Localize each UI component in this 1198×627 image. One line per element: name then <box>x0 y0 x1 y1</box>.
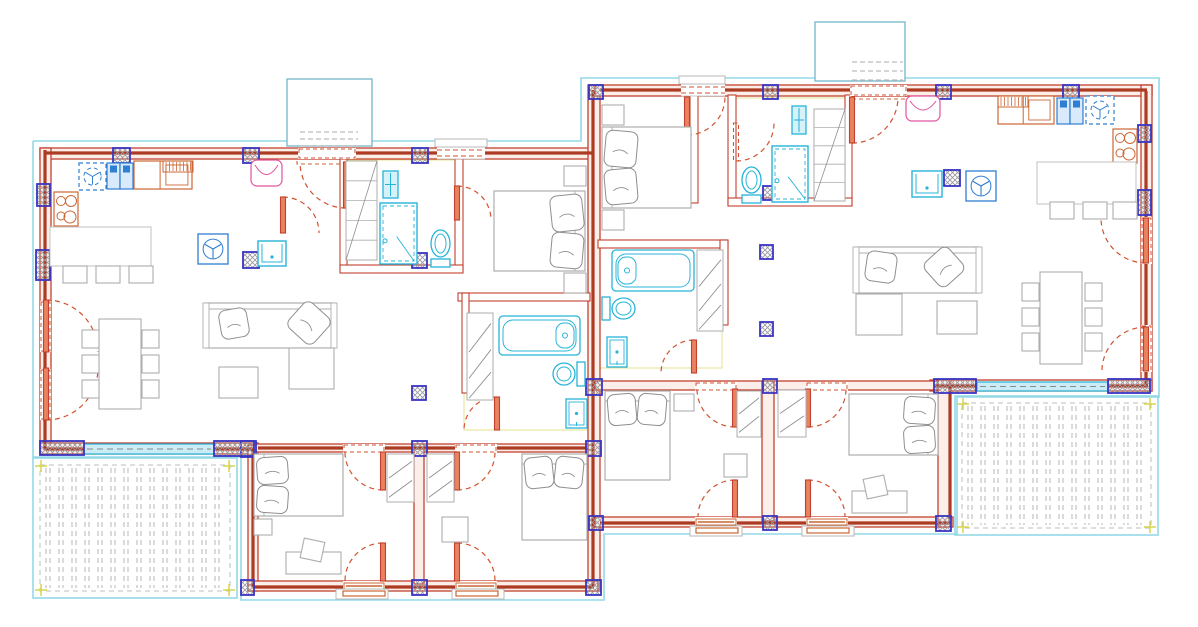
door-swing-arc <box>457 543 495 581</box>
bathtub <box>499 316 580 355</box>
laundry-sink <box>912 171 942 197</box>
pillow <box>256 456 289 485</box>
door-leaf <box>455 543 460 581</box>
door-leaf <box>733 480 738 517</box>
toilet <box>431 230 450 267</box>
pillar <box>113 148 130 163</box>
washing-machine <box>79 163 106 190</box>
sofa-chaise <box>856 294 902 335</box>
window-sill <box>435 139 487 147</box>
chair <box>142 380 159 398</box>
pillow <box>523 456 554 490</box>
entrance-canopy <box>287 79 372 146</box>
chair <box>1022 283 1039 301</box>
stove <box>54 192 78 226</box>
door-swing-arc <box>808 480 845 517</box>
interior-wall <box>728 95 736 205</box>
bathroom-sink <box>566 399 587 428</box>
wardrobe <box>387 454 414 502</box>
pillar <box>936 516 951 531</box>
pillow <box>550 232 585 270</box>
pillow <box>553 456 584 490</box>
washer-dryer <box>198 234 228 264</box>
door-leaf <box>850 97 855 143</box>
chair <box>82 355 99 373</box>
door-swing-arc <box>283 197 319 233</box>
pillow <box>549 193 585 232</box>
pillar <box>1138 190 1151 215</box>
door-leaf <box>806 480 811 517</box>
entrance-canopy <box>815 22 905 81</box>
pillar-wide <box>934 379 976 393</box>
door-swing-arc <box>697 389 735 427</box>
kitchen-sink <box>1057 98 1083 124</box>
interior-wall <box>598 240 728 248</box>
shower-cabin <box>772 146 808 202</box>
pillow <box>637 393 668 426</box>
door-leaf <box>44 300 49 352</box>
nightstand <box>564 166 586 186</box>
wash-basin <box>251 160 282 186</box>
pillar <box>760 322 773 336</box>
chair <box>1085 333 1102 351</box>
floor-plan-page: Two-unit house floor plan — CAD drawing <box>0 0 1198 627</box>
door-leaf <box>381 452 386 490</box>
dining-table <box>99 319 141 409</box>
wardrobe <box>778 390 806 437</box>
pillar <box>589 85 603 99</box>
nightstand <box>674 394 694 411</box>
closet-shelves <box>814 109 845 201</box>
pillow <box>903 425 936 454</box>
door-leaf <box>44 368 49 420</box>
pillar <box>586 441 601 456</box>
dining-table <box>1040 272 1082 364</box>
desk-chair <box>300 538 325 562</box>
interior-window <box>792 106 806 134</box>
door-leaf <box>381 543 386 581</box>
pillar-wide <box>40 441 84 455</box>
wash-basin <box>906 96 940 121</box>
door-swing-arc <box>1101 218 1146 263</box>
chair <box>1022 333 1039 351</box>
door-swing-arc <box>345 543 383 581</box>
desk-chair <box>863 475 888 499</box>
pillar-wide <box>1108 379 1150 393</box>
stove <box>1113 129 1137 163</box>
pillow <box>603 130 638 169</box>
bar-stool <box>96 266 120 283</box>
pillow <box>864 250 898 284</box>
wardrobe <box>427 454 454 502</box>
pillar <box>760 245 773 259</box>
wardrobe <box>697 250 723 331</box>
pillar <box>243 252 259 268</box>
kitchen-island <box>1037 162 1136 204</box>
pillar <box>589 516 603 530</box>
coffee-table <box>219 367 258 398</box>
door-swing-arc <box>1102 327 1146 371</box>
terrace-left <box>33 458 237 598</box>
pillar <box>586 580 601 595</box>
wall <box>414 444 424 584</box>
chair <box>1022 308 1039 326</box>
floor-plan-canvas: Two-unit house floor plan — CAD drawing <box>0 0 1198 627</box>
pillar <box>36 250 50 280</box>
sofa-chaise <box>289 348 334 389</box>
wardrobe <box>737 391 761 437</box>
bar-stool <box>63 266 87 283</box>
pillar <box>1138 125 1151 142</box>
terrace-right <box>955 396 1158 535</box>
wardrobe <box>467 313 493 400</box>
kitchen-counter <box>998 96 1054 124</box>
kitchen-sink <box>107 163 133 189</box>
pillow <box>218 307 251 340</box>
toilet <box>742 167 761 203</box>
chair <box>82 330 99 348</box>
shower-cabin <box>380 203 417 264</box>
door-swing-arc <box>736 123 774 161</box>
wall <box>938 380 950 527</box>
door-leaf <box>281 197 286 233</box>
door-leaf <box>692 340 697 373</box>
door-swing-arc <box>852 97 898 143</box>
desk <box>442 517 468 542</box>
pillar <box>763 516 777 530</box>
washing-machine <box>1086 96 1114 124</box>
pillar <box>412 580 427 595</box>
interior-window <box>383 171 398 198</box>
door-leaf <box>495 397 500 430</box>
wall <box>762 381 774 521</box>
chair <box>1085 283 1102 301</box>
pillar <box>412 148 428 163</box>
pillow <box>607 393 638 426</box>
kitchen-island <box>50 227 151 266</box>
desk <box>724 454 747 477</box>
closet-shelves <box>346 161 377 260</box>
bathroom-sink <box>607 337 627 367</box>
nightstand <box>602 105 624 125</box>
pillar <box>1063 85 1079 99</box>
door-swing-arc <box>457 452 495 490</box>
chair <box>142 355 159 373</box>
pillow <box>903 396 936 425</box>
pillar <box>37 184 50 206</box>
nightstand <box>564 273 586 293</box>
pillar-wide <box>214 441 254 456</box>
nightstand <box>254 519 272 535</box>
pillar <box>763 379 777 393</box>
toilet <box>602 297 635 320</box>
laundry-sink <box>258 241 286 266</box>
door-leaf <box>1144 218 1149 263</box>
chair <box>142 330 159 348</box>
pillow <box>256 485 289 514</box>
door-leaf <box>455 186 460 220</box>
coffee-table <box>937 301 977 334</box>
bar-stool <box>129 266 153 283</box>
door-swing-arc <box>698 480 735 517</box>
door-leaf <box>1144 327 1149 371</box>
door-leaf <box>455 452 460 490</box>
door-swing-arc <box>345 452 383 490</box>
interior-wall <box>458 293 590 301</box>
washer-dryer <box>966 171 996 201</box>
nightstand <box>602 210 624 230</box>
pillar <box>936 85 951 99</box>
toilet <box>553 362 585 386</box>
door-swing-arc <box>808 389 846 427</box>
bar-stool <box>1083 202 1107 219</box>
window-sill <box>679 76 725 84</box>
pillar <box>412 386 426 400</box>
door-swing-arc <box>464 397 497 430</box>
chair <box>1085 308 1102 326</box>
pillow <box>604 168 639 206</box>
bar-stool <box>1113 202 1137 219</box>
pillar <box>763 85 778 99</box>
pillar <box>944 170 960 186</box>
pillar <box>241 580 254 595</box>
pillar <box>586 379 602 395</box>
chair <box>82 380 99 398</box>
door-swing-arc <box>300 162 346 208</box>
bar-stool <box>1050 202 1074 219</box>
bathtub <box>612 250 694 291</box>
